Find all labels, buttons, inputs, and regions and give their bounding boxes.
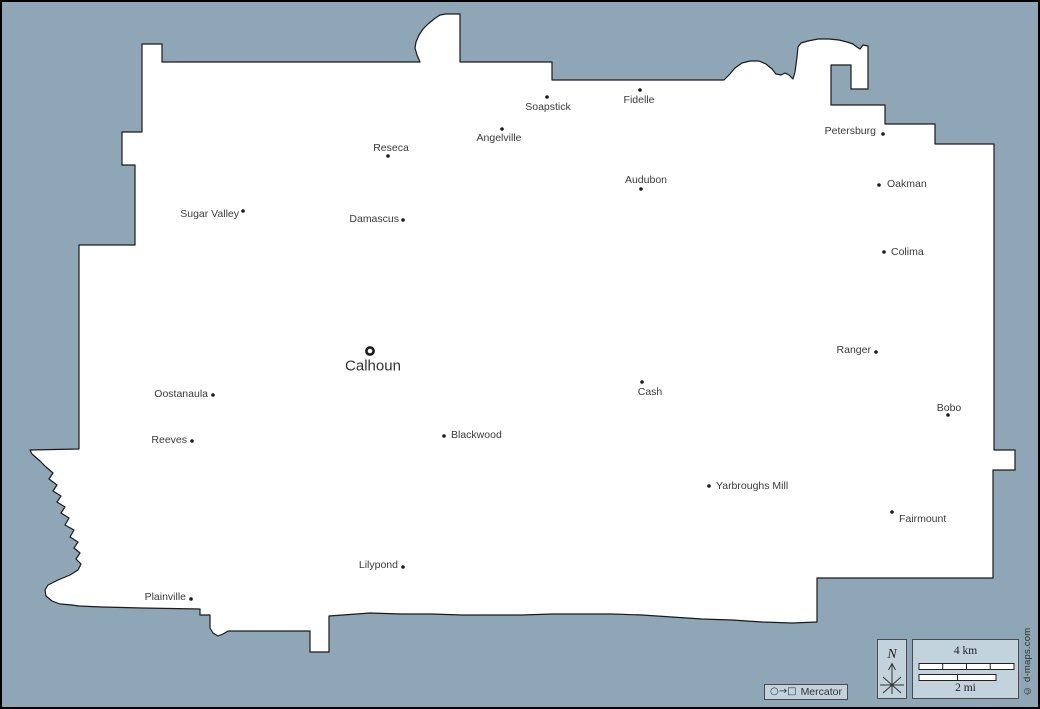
north-arrow-box: N [877,639,907,699]
town-dot [640,380,644,384]
town-dot [882,250,886,254]
town-dot [401,565,405,569]
town-dot [211,393,215,397]
county-seat-label: Calhoun [345,358,401,375]
town-label: Bobo [937,402,962,414]
town-label: Cash [638,386,663,398]
county-map: SoapstickFidelleAngelvillePetersburgRese… [2,2,1040,709]
town-label: Blackwood [451,429,502,441]
map-canvas: SoapstickFidelleAngelvillePetersburgRese… [0,0,1040,709]
town-dot [189,597,193,601]
town-dot [707,484,711,488]
projection-box: ○→□ Mercator [764,684,848,700]
town-label: Colima [891,246,924,258]
town-label: Angelville [477,132,522,144]
town-dot [877,183,881,187]
compass-icon [880,664,904,695]
town-dot [874,350,878,354]
town-label: Sugar Valley [180,208,240,220]
town-label: Plainville [145,591,187,603]
town-label: Ranger [837,344,872,356]
town-label: Fidelle [624,94,655,106]
town-label: Oakman [887,178,927,190]
town-label: Oostanaula [154,388,208,400]
town-label: Audubon [625,174,667,186]
scale-mi-label: 2 mi [913,682,1018,694]
town-label: Fairmount [899,513,946,525]
town-dot [500,127,504,131]
town-label: Soapstick [525,101,571,113]
town-label: Lilypond [359,559,398,571]
county-outline [30,14,1015,652]
scale-bar-box: 4 km 2 mi [912,639,1019,699]
town-dot [190,439,194,443]
town-label: Reseca [373,142,409,154]
town-dot [401,218,405,222]
mi-scale-bar [919,675,996,681]
km-scale-bar [919,664,1014,670]
county-seat-marker [366,347,373,354]
north-label: N [886,647,897,662]
town-label: Reeves [151,434,187,446]
town-label: Yarbroughs Mill [716,480,788,492]
town-dot [638,88,642,92]
copyright-text: © d-maps.com [1022,618,1036,706]
town-label: Petersburg [825,125,877,137]
town-dot [442,434,446,438]
town-dot [386,154,390,158]
town-dot [545,95,549,99]
projection-label: Mercator [801,687,842,698]
town-dot [241,209,245,213]
town-dot [881,132,885,136]
projection-icon: ○→□ [770,687,797,697]
town-label: Damascus [349,213,399,225]
town-dot [639,187,643,191]
town-dot [890,510,894,514]
